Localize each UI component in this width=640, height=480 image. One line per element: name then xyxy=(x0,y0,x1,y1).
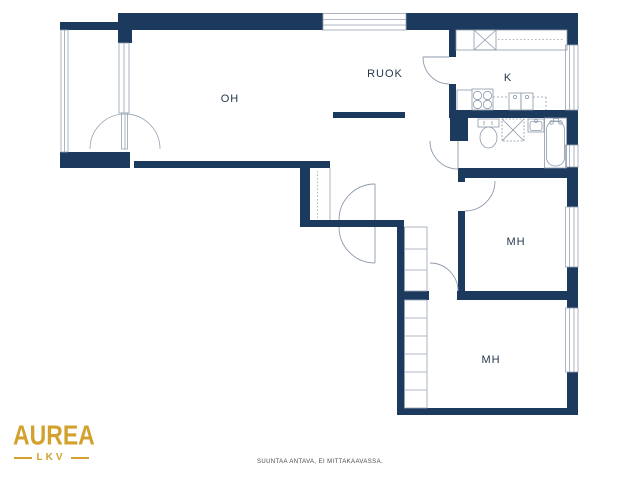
wall-mh1-left-stub xyxy=(458,178,465,182)
wall-ruok-stub xyxy=(333,112,405,118)
window-mh1 xyxy=(566,207,579,267)
wall-mh2-top-right xyxy=(457,291,578,300)
wall-corridor-left xyxy=(397,227,405,415)
bathroom-door xyxy=(430,141,458,169)
balcony-railing xyxy=(61,30,68,152)
washing-machine-icon xyxy=(502,119,524,141)
wall-mh1-left xyxy=(458,211,465,291)
floor-plan-svg: OH RUOK K MH MH xyxy=(0,0,640,480)
bath-sink-icon xyxy=(528,119,544,132)
wall-kitchen-bottom xyxy=(449,110,578,118)
kitchen-fixtures xyxy=(456,30,567,110)
wall-bath-bottom xyxy=(458,168,578,178)
wall-right-4 xyxy=(567,267,578,308)
balcony xyxy=(61,30,160,152)
wall-right-2 xyxy=(567,110,578,145)
wall-balcony-bottom xyxy=(60,152,130,168)
bathtub-icon xyxy=(545,118,567,168)
closets xyxy=(318,168,428,408)
mh2-closet xyxy=(405,300,428,408)
bathroom-fixtures xyxy=(478,118,567,168)
window-mh2 xyxy=(566,308,579,372)
mh1-door-arc xyxy=(465,181,495,211)
toilet-icon xyxy=(478,119,499,148)
room-label-oh: OH xyxy=(221,93,240,105)
kitchen-counter-top xyxy=(456,30,567,50)
wall-right-3 xyxy=(567,167,578,207)
wall-hall-bottom xyxy=(300,220,404,227)
mh2-door-arc xyxy=(430,263,458,291)
balcony-partition-window xyxy=(119,43,129,149)
fridge-icon xyxy=(474,30,496,50)
kitchen-door xyxy=(423,57,449,84)
room-label-k: K xyxy=(504,72,512,84)
wall-corner-block xyxy=(118,30,132,43)
kitchen-sink-icon xyxy=(509,93,533,110)
wall-oh-bottom xyxy=(134,161,330,168)
wall-top-right xyxy=(406,13,578,30)
hall-wardrobe xyxy=(318,168,331,220)
window-top xyxy=(323,14,406,31)
wall-right-5 xyxy=(567,372,578,415)
wall-kitchen-left-lower xyxy=(449,84,456,110)
logo-text: AUREA xyxy=(13,422,83,450)
wall-kitchen-left-upper xyxy=(449,30,456,57)
aurea-logo: AUREA LKV xyxy=(13,422,89,463)
wall-bath-block xyxy=(450,118,468,141)
disclaimer-text: SUUNTAA ANTAVA, EI MITTAKAAVASSA. xyxy=(0,459,640,465)
stove-icon xyxy=(472,89,493,110)
room-label-mh2: MH xyxy=(481,354,500,366)
wall-mh2-top-left xyxy=(397,291,429,300)
windows xyxy=(323,14,578,373)
wall-balcony-top xyxy=(60,22,118,30)
window-bathroom xyxy=(566,145,579,167)
room-label-ruok: RUOK xyxy=(367,68,403,80)
wall-hall-left xyxy=(300,168,310,220)
wall-right-1 xyxy=(567,30,578,45)
room-label-mh1: MH xyxy=(506,236,525,248)
wall-top-left xyxy=(118,13,323,30)
window-kitchen xyxy=(566,45,579,110)
wall-mh2-bottom xyxy=(397,408,578,415)
corridor-closet xyxy=(405,227,428,291)
floor-plan-page: OH RUOK K MH MH AUREA LKV SUUNTAA ANTAVA… xyxy=(0,0,640,480)
